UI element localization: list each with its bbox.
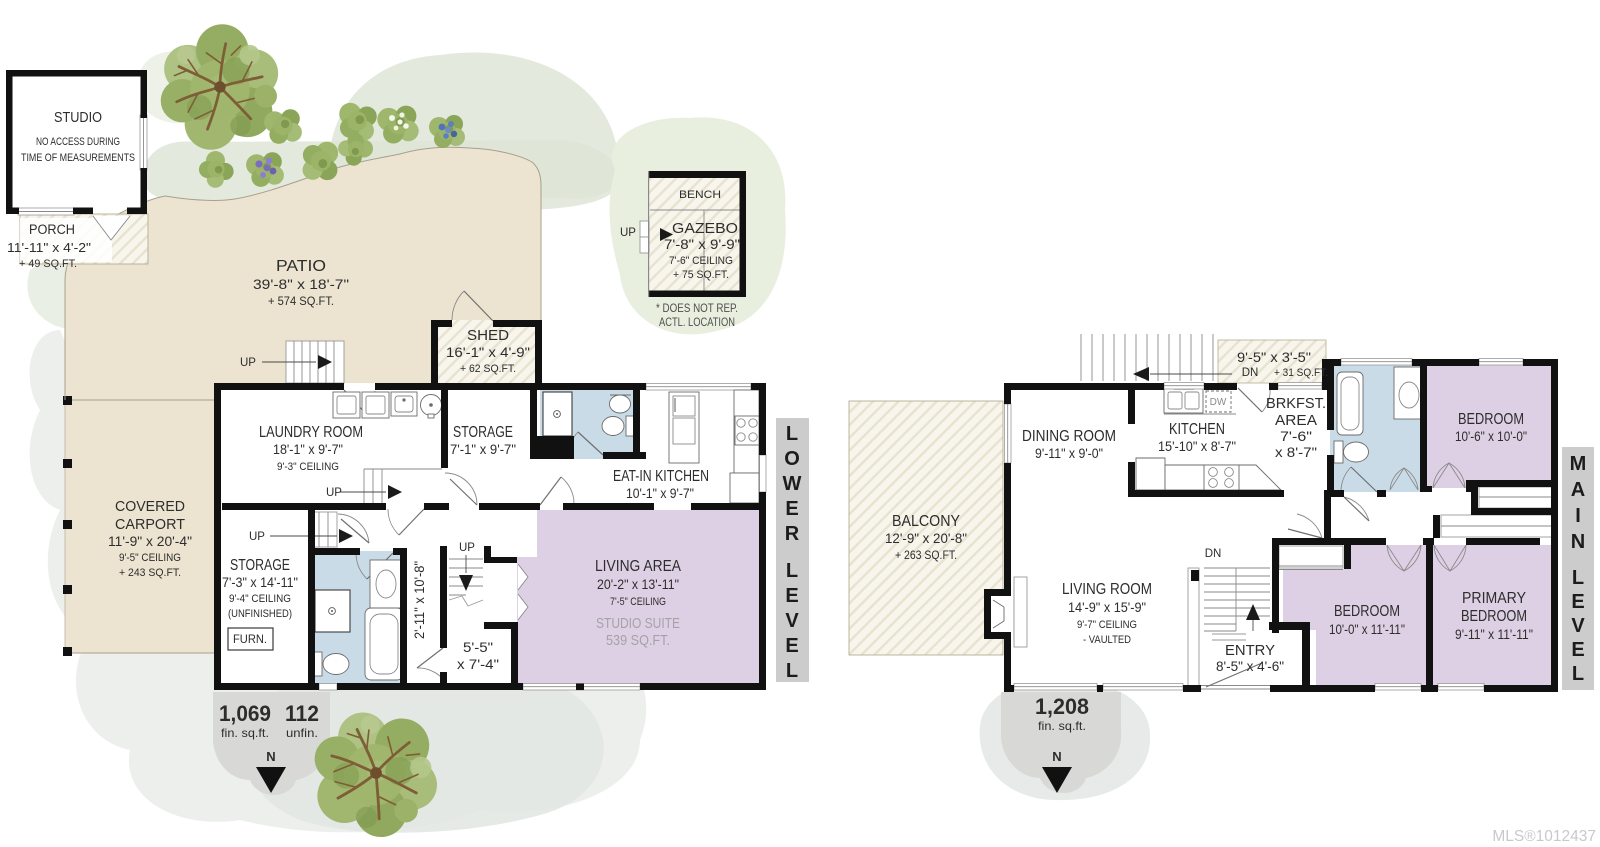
- svg-text:8'-5" x 4'-6": 8'-5" x 4'-6": [1216, 659, 1284, 674]
- svg-text:x 7'-4": x 7'-4": [457, 657, 499, 672]
- svg-text:FURN.: FURN.: [233, 634, 267, 646]
- svg-text:BEDROOM: BEDROOM: [1458, 411, 1524, 428]
- svg-text:x 8'-7": x 8'-7": [1275, 445, 1317, 460]
- svg-text:7'-1" x 9'-7": 7'-1" x 9'-7": [450, 441, 516, 457]
- svg-text:9'-3" CEILING: 9'-3" CEILING: [277, 461, 339, 473]
- svg-text:+ 243 SQ.FT.: + 243 SQ.FT.: [119, 567, 181, 579]
- svg-text:539 SQ.FT.: 539 SQ.FT.: [606, 632, 670, 649]
- svg-text:DINING ROOM: DINING ROOM: [1022, 428, 1116, 445]
- svg-text:BEDROOM: BEDROOM: [1461, 608, 1527, 625]
- svg-text:112: 112: [285, 701, 319, 726]
- svg-text:20'-2" x 13'-11": 20'-2" x 13'-11": [597, 576, 679, 592]
- svg-text:L: L: [786, 423, 798, 445]
- svg-text:E: E: [1571, 591, 1584, 613]
- svg-text:7'-8" x 9'-9": 7'-8" x 9'-9": [664, 237, 740, 252]
- svg-text:9'-5" x 3'-5": 9'-5" x 3'-5": [1237, 349, 1311, 365]
- svg-text:DN: DN: [1205, 548, 1222, 560]
- svg-text:+ 49 SQ.FT.: + 49 SQ.FT.: [19, 258, 77, 270]
- svg-text:COVERED: COVERED: [115, 499, 185, 515]
- svg-text:W: W: [783, 473, 802, 495]
- svg-text:BRKFST.: BRKFST.: [1266, 396, 1326, 412]
- svg-text:CARPORT: CARPORT: [115, 517, 185, 533]
- svg-text:LIVING AREA: LIVING AREA: [595, 558, 682, 575]
- svg-text:fin. sq.ft.: fin. sq.ft.: [1038, 719, 1086, 733]
- svg-text:* DOES NOT REP.: * DOES NOT REP.: [656, 303, 738, 315]
- svg-text:+ 31 SQ.FT.: + 31 SQ.FT.: [1274, 367, 1328, 379]
- svg-text:+ 574 SQ.FT.: + 574 SQ.FT.: [268, 296, 334, 308]
- svg-text:14'-9" x 15'-9": 14'-9" x 15'-9": [1068, 599, 1146, 615]
- svg-text:STORAGE: STORAGE: [230, 557, 290, 574]
- svg-text:DN: DN: [1242, 367, 1259, 379]
- svg-text:UP: UP: [620, 227, 636, 239]
- svg-text:7'-6" CEILING: 7'-6" CEILING: [669, 255, 733, 267]
- svg-text:SHED: SHED: [467, 328, 509, 344]
- svg-text:BALCONY: BALCONY: [892, 513, 960, 530]
- svg-text:ACTL. LOCATION: ACTL. LOCATION: [659, 317, 735, 329]
- svg-text:10'-1" x 9'-7": 10'-1" x 9'-7": [626, 485, 694, 501]
- svg-text:GAZEBO: GAZEBO: [672, 220, 738, 237]
- svg-text:UP: UP: [459, 542, 475, 554]
- svg-text:1,208: 1,208: [1035, 694, 1089, 719]
- svg-text:18'-1" x 9'-7": 18'-1" x 9'-7": [273, 441, 343, 457]
- svg-text:UP: UP: [326, 487, 342, 499]
- svg-text:KITCHEN: KITCHEN: [1169, 421, 1225, 438]
- svg-text:UP: UP: [249, 531, 265, 543]
- svg-text:11'-9" x 20'-4": 11'-9" x 20'-4": [108, 534, 192, 549]
- svg-text:9'-11" x 9'-0": 9'-11" x 9'-0": [1035, 445, 1103, 461]
- svg-text:N: N: [1052, 749, 1061, 764]
- svg-text:9'-5" CEILING: 9'-5" CEILING: [119, 552, 181, 564]
- svg-text:10'-6" x 10'-0": 10'-6" x 10'-0": [1455, 428, 1527, 444]
- svg-text:DW: DW: [1210, 397, 1227, 408]
- svg-text:L: L: [1572, 567, 1584, 589]
- svg-text:10'-0" x 11'-11": 10'-0" x 11'-11": [1329, 621, 1405, 637]
- svg-text:UP: UP: [240, 357, 256, 369]
- svg-text:(UNFINISHED): (UNFINISHED): [228, 608, 292, 620]
- svg-text:M: M: [1570, 453, 1587, 475]
- svg-text:5'-5": 5'-5": [463, 640, 493, 655]
- svg-text:N: N: [266, 749, 275, 764]
- svg-text:I: I: [1575, 505, 1581, 527]
- svg-text:PRIMARY: PRIMARY: [1462, 590, 1526, 607]
- svg-text:E: E: [785, 635, 798, 657]
- svg-text:7'-6": 7'-6": [1280, 429, 1312, 444]
- svg-text:2'-11" x 10'-8": 2'-11" x 10'-8": [412, 561, 427, 639]
- svg-text:1,069: 1,069: [219, 701, 271, 726]
- svg-text:NO ACCESS DURING: NO ACCESS DURING: [36, 136, 120, 148]
- svg-text:15'-10" x 8'-7": 15'-10" x 8'-7": [1158, 438, 1236, 454]
- svg-text:TIME OF MEASUREMENTS: TIME OF MEASUREMENTS: [21, 152, 135, 164]
- svg-text:fin. sq.ft.: fin. sq.ft.: [221, 726, 269, 740]
- svg-text:E: E: [785, 585, 798, 607]
- svg-text:9'-11" x 11'-11": 9'-11" x 11'-11": [1455, 626, 1533, 642]
- svg-text:O: O: [784, 448, 800, 470]
- svg-text:A: A: [1571, 479, 1585, 501]
- svg-text:9'-7" CEILING: 9'-7" CEILING: [1077, 619, 1137, 631]
- svg-text:STUDIO: STUDIO: [54, 110, 102, 126]
- svg-text:N: N: [1571, 531, 1585, 553]
- svg-text:ENTRY: ENTRY: [1225, 643, 1275, 659]
- svg-text:9'-4" CEILING: 9'-4" CEILING: [229, 593, 291, 605]
- svg-text:EAT-IN KITCHEN: EAT-IN KITCHEN: [613, 468, 709, 485]
- svg-text:MLS®1012437: MLS®1012437: [1492, 828, 1596, 845]
- svg-text:L: L: [1572, 663, 1584, 685]
- svg-text:7'-5" CEILING: 7'-5" CEILING: [610, 596, 666, 608]
- svg-text:V: V: [785, 610, 799, 632]
- svg-text:L: L: [786, 660, 798, 682]
- svg-text:V: V: [1571, 615, 1585, 637]
- svg-text:L: L: [786, 560, 798, 582]
- svg-text:E: E: [1571, 639, 1584, 661]
- svg-text:R: R: [785, 523, 800, 545]
- svg-text:39'-8" x 18'-7": 39'-8" x 18'-7": [253, 276, 349, 292]
- svg-text:PORCH: PORCH: [29, 222, 75, 237]
- svg-text:BENCH: BENCH: [679, 189, 721, 201]
- svg-text:12'-9" x 20'-8": 12'-9" x 20'-8": [885, 530, 967, 546]
- svg-text:AREA: AREA: [1275, 413, 1317, 429]
- svg-text:unfin.: unfin.: [286, 726, 318, 740]
- svg-text:STUDIO SUITE: STUDIO SUITE: [596, 615, 680, 632]
- svg-text:LAUNDRY ROOM: LAUNDRY ROOM: [259, 424, 363, 441]
- svg-text:+ 75 SQ.FT.: + 75 SQ.FT.: [673, 269, 729, 281]
- svg-text:11'-11" x 4'-2": 11'-11" x 4'-2": [7, 240, 91, 255]
- svg-text:E: E: [785, 498, 798, 520]
- svg-text:+ 263 SQ.FT.: + 263 SQ.FT.: [895, 550, 957, 562]
- svg-text:- VAULTED: - VAULTED: [1083, 634, 1131, 646]
- svg-text:16'-1" x 4'-9": 16'-1" x 4'-9": [446, 345, 530, 360]
- svg-text:+ 62 SQ.FT.: + 62 SQ.FT.: [460, 363, 516, 375]
- svg-text:STORAGE: STORAGE: [453, 424, 513, 441]
- svg-text:7'-3" x 14'-11": 7'-3" x 14'-11": [222, 574, 298, 590]
- svg-text:LIVING ROOM: LIVING ROOM: [1062, 581, 1152, 598]
- svg-text:PATIO: PATIO: [276, 258, 326, 275]
- svg-text:BEDROOM: BEDROOM: [1334, 603, 1400, 620]
